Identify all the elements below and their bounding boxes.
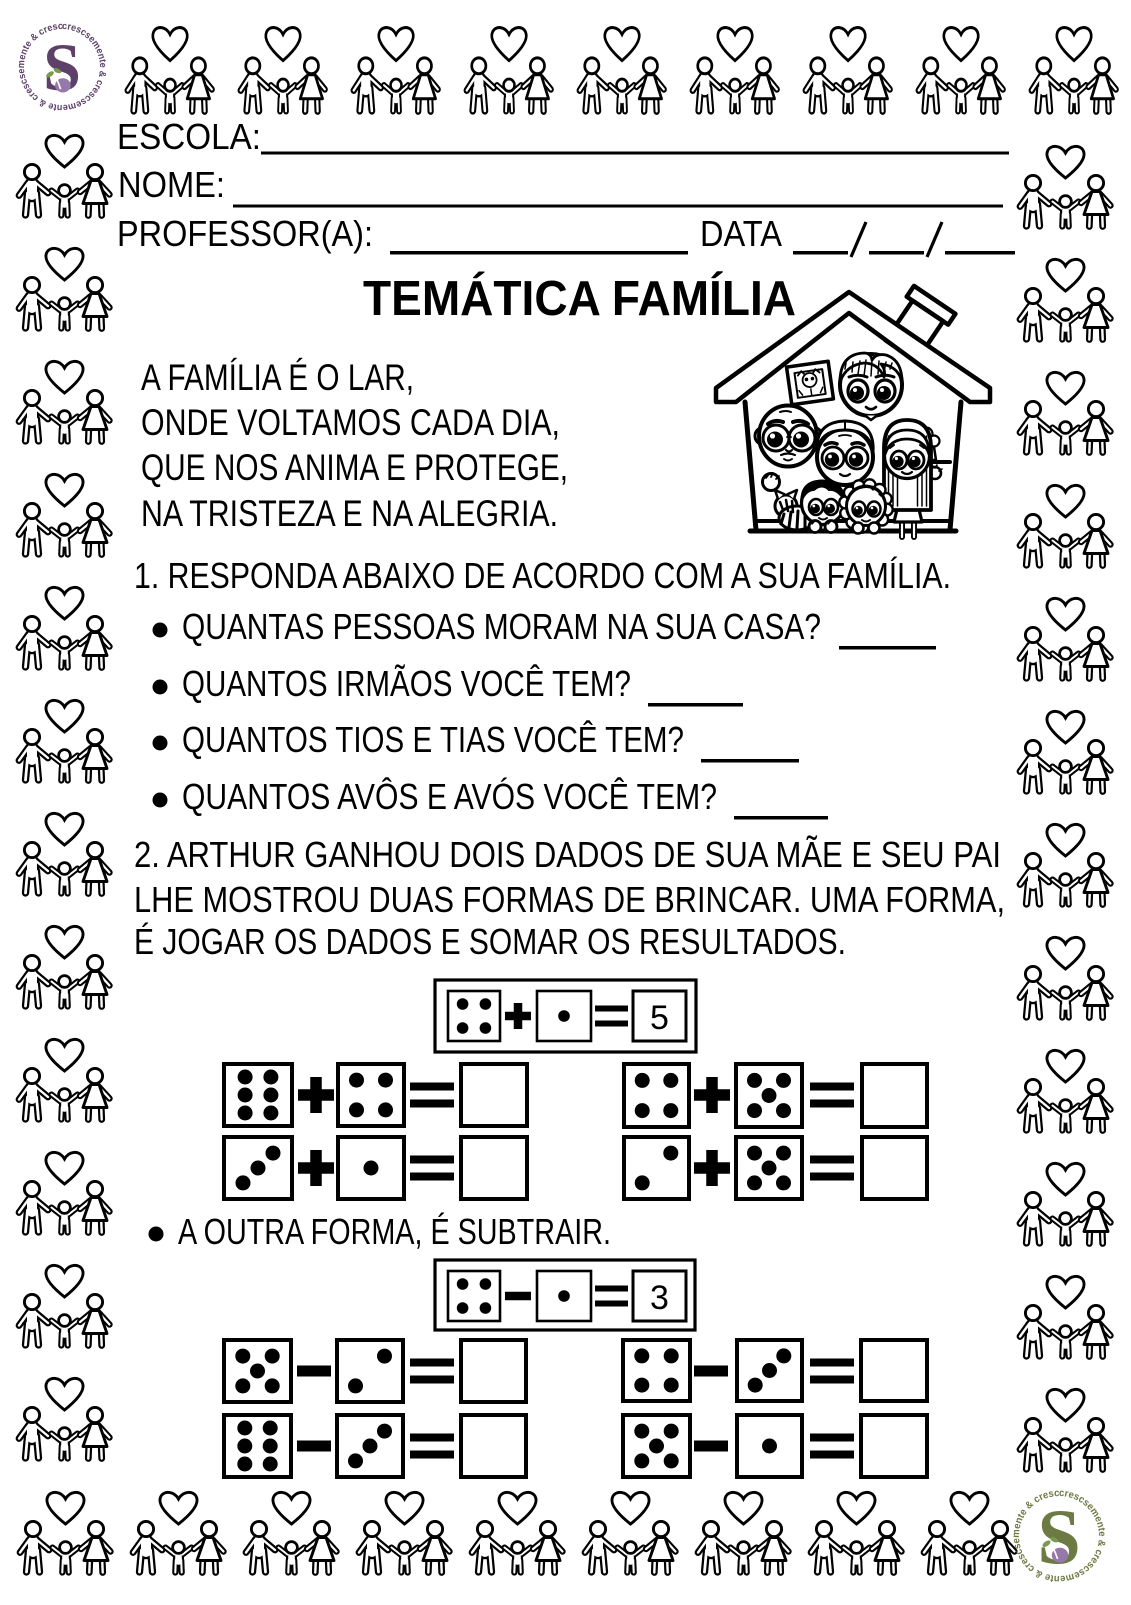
svg-text:A OUTRA FORMA, É SUBTRAIR.: A OUTRA FORMA, É SUBTRAIR. <box>178 1211 611 1252</box>
svg-text:5: 5 <box>650 999 669 1037</box>
svg-text:3: 3 <box>650 1279 669 1317</box>
svg-text:1. RESPONDA ABAIXO DE ACORDO C: 1. RESPONDA ABAIXO DE ACORDO COM A SUA F… <box>134 555 951 596</box>
svg-text:QUANTAS PESSOAS MORAM NA SUA C: QUANTAS PESSOAS MORAM NA SUA CASA? <box>182 606 821 647</box>
svg-text:NOME:: NOME: <box>118 164 225 205</box>
svg-text:QUANTOS TIOS E TIAS VOCÊ TEM?: QUANTOS TIOS E TIAS VOCÊ TEM? <box>182 719 684 760</box>
svg-text:ONDE VOLTAMOS CADA DIA,: ONDE VOLTAMOS CADA DIA, <box>141 402 560 443</box>
svg-text:TEMÁTICA FAMÍLIA: TEMÁTICA FAMÍLIA <box>363 272 796 326</box>
svg-text:QUANTOS AVÔS E AVÓS VOCÊ TEM?: QUANTOS AVÔS E AVÓS VOCÊ TEM? <box>182 776 717 817</box>
svg-text:ESCOLA:: ESCOLA: <box>117 116 261 157</box>
svg-text:É JOGAR OS DADOS E SOMAR OS RE: É JOGAR OS DADOS E SOMAR OS RESULTADOS. <box>134 921 846 962</box>
svg-text:DATA: DATA <box>700 213 782 254</box>
svg-text:NA TRISTEZA E NA ALEGRIA.: NA TRISTEZA E NA ALEGRIA. <box>141 493 558 534</box>
svg-text:A FAMÍLIA É O LAR,: A FAMÍLIA É O LAR, <box>141 357 414 398</box>
svg-text:QUE NOS ANIMA E PROTEGE,: QUE NOS ANIMA E PROTEGE, <box>141 447 568 488</box>
svg-text:QUANTOS IRMÃOS VOCÊ TEM?: QUANTOS IRMÃOS VOCÊ TEM? <box>182 663 631 704</box>
svg-text:PROFESSOR(A):: PROFESSOR(A): <box>117 213 373 254</box>
svg-text:S: S <box>1037 1493 1080 1580</box>
svg-text:2. ARTHUR GANHOU DOIS DADOS DE: 2. ARTHUR GANHOU DOIS DADOS DE SUA MÃE E… <box>134 834 1001 875</box>
svg-text:LHE MOSTROU DUAS FORMAS DE BRI: LHE MOSTROU DUAS FORMAS DE BRINCAR. UMA … <box>134 879 1005 920</box>
svg-text:S: S <box>43 29 81 105</box>
